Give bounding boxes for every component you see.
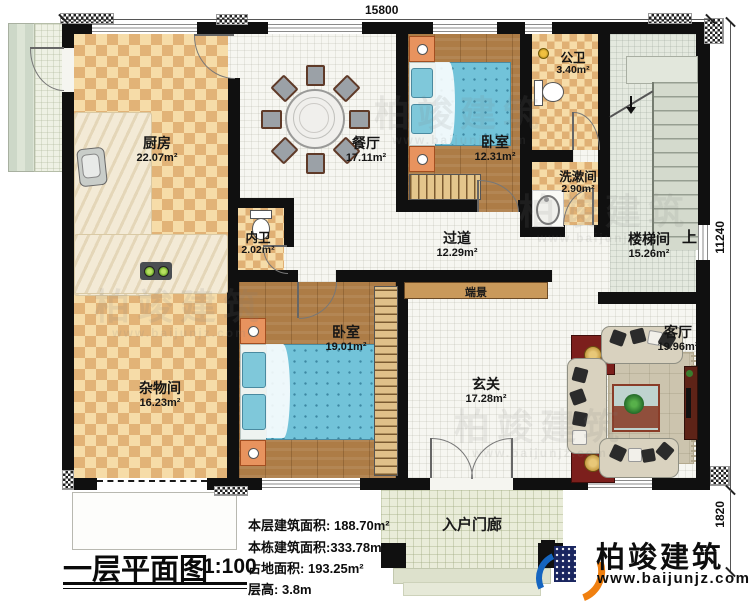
stair-up-label: 上: [682, 226, 697, 247]
hatch-mark: [214, 486, 248, 496]
porch-label: 入户门廊: [442, 514, 502, 535]
stove-burner-icon: [158, 266, 169, 277]
wall-segment: [227, 282, 239, 478]
wall-segment: [362, 22, 433, 34]
wall-segment: [284, 208, 294, 247]
dining-chair: [306, 65, 325, 86]
wall-segment: [520, 34, 532, 212]
wall-segment: [696, 22, 710, 225]
bed1-pillow: [411, 104, 433, 134]
stat-floor-height: 层高: 3.8m: [248, 579, 312, 598]
sofa-pillow: [641, 448, 656, 463]
sofa-pillow: [572, 430, 587, 445]
kitchen-sink-basin: [81, 153, 101, 179]
stair-arrow-head-icon: [626, 107, 636, 114]
nightstand-knob-icon: [417, 44, 428, 55]
room-label-inner-bath: 内卫2.02m²: [241, 231, 274, 257]
dimension-porch-value: 1820: [713, 498, 727, 531]
porch-step-2: [403, 582, 541, 596]
plant-icon: [624, 394, 644, 414]
stair-landing: [626, 56, 698, 84]
title-underline-thick: [63, 582, 247, 585]
bed2-pillow: [242, 394, 266, 430]
wall-segment: [228, 78, 240, 202]
sofa-pillow: [628, 448, 642, 462]
room-label-public-bath: 公卫3.40m²: [556, 51, 589, 77]
entry-door-opening: [430, 478, 513, 490]
sofa-pillow: [572, 411, 588, 427]
room-label-bedroom1: 卧室12.31m²: [475, 135, 516, 163]
wall-segment: [62, 22, 74, 48]
bed2-pillow: [242, 352, 266, 388]
room-label-foyer: 玄关17.28m²: [466, 377, 507, 405]
nightstand-knob-icon: [248, 448, 259, 459]
wall-segment: [598, 292, 710, 304]
nightstand: [409, 36, 435, 62]
wall-segment: [396, 200, 478, 212]
window: [262, 478, 360, 490]
rear-slab: [72, 492, 237, 550]
wall-segment: [396, 34, 408, 212]
bedroom1-closet: [409, 174, 481, 200]
logo-building-icon: [554, 546, 576, 582]
window: [696, 225, 710, 260]
stat-footprint-area: 占地面积: 193.25m²: [248, 558, 364, 577]
end-view-label: 端景: [465, 287, 487, 299]
wall-segment: [62, 92, 74, 488]
wall-segment: [598, 34, 610, 237]
room-label-hallway: 过道12.29m²: [437, 231, 478, 259]
stair-flight: [652, 82, 698, 250]
room-label-living: 客厅19.96m²: [658, 325, 699, 353]
stat-floor-area: 本层建筑面积: 188.70m²: [248, 515, 390, 534]
side-patio-planks: [8, 23, 36, 172]
brand-url: www.baijunjz.com: [597, 570, 750, 587]
window: [268, 22, 362, 34]
plant-icon: [686, 370, 693, 377]
dining-chair: [349, 110, 370, 129]
room-label-storage: 杂物间16.23m²: [139, 381, 181, 409]
window: [525, 22, 552, 34]
faucet-icon: [544, 197, 549, 202]
title-underline-thin: [63, 588, 247, 589]
nightstand: [240, 318, 266, 344]
bedroom2-wardrobe: [374, 286, 398, 476]
wall-segment: [497, 22, 525, 34]
wall-segment: [652, 478, 710, 490]
nightstand: [240, 440, 266, 466]
wall-segment: [336, 270, 552, 282]
bed1-pillow: [411, 68, 433, 98]
room-label-kitchen: 厨房22.07m²: [137, 136, 178, 164]
dining-chair: [306, 153, 325, 174]
nightstand: [409, 146, 435, 172]
bed2-blanket: [266, 344, 290, 438]
side-patio-inner: [34, 23, 64, 172]
stove-burner-icon: [144, 266, 155, 277]
dining-chair: [261, 110, 282, 129]
nightstand-knob-icon: [248, 326, 259, 337]
nightstand-knob-icon: [417, 154, 428, 165]
room-label-dining: 餐厅17.11m²: [346, 136, 386, 164]
wall-lamp-icon: [538, 48, 549, 59]
bed1-blanket: [435, 62, 455, 144]
dining-table-ring: [299, 103, 329, 133]
hatch-mark: [710, 466, 730, 486]
wall-segment: [594, 225, 610, 237]
storage-opening-dashed-line: [97, 480, 207, 482]
dimension-right-value: 11240: [713, 218, 727, 257]
room-label-washroom: 洗漱间2.90m²: [559, 170, 597, 196]
room-label-bedroom2: 卧室19.01m²: [326, 325, 367, 353]
toilet-bowl-icon: [542, 82, 564, 102]
floor-plan-canvas: 端景 15800 1124: [0, 0, 750, 601]
end-view-console: 端景: [404, 282, 548, 299]
dimension-top-value: 15800: [362, 3, 401, 17]
tv-icon: [686, 388, 691, 418]
dimension-line-right: [730, 22, 731, 490]
dimension-line-top: [62, 19, 711, 20]
hatch-mark: [62, 470, 74, 490]
wall-segment: [532, 150, 573, 162]
room-label-stairwell: 楼梯间15.26m²: [628, 232, 670, 260]
wall-segment: [238, 198, 294, 208]
stat-building-area: 本栋建筑面积:333.78m²: [248, 537, 386, 556]
window: [433, 22, 497, 34]
wall-segment: [360, 478, 430, 490]
brand-logo: 柏竣建筑 www.baijunjz.com: [533, 533, 745, 597]
